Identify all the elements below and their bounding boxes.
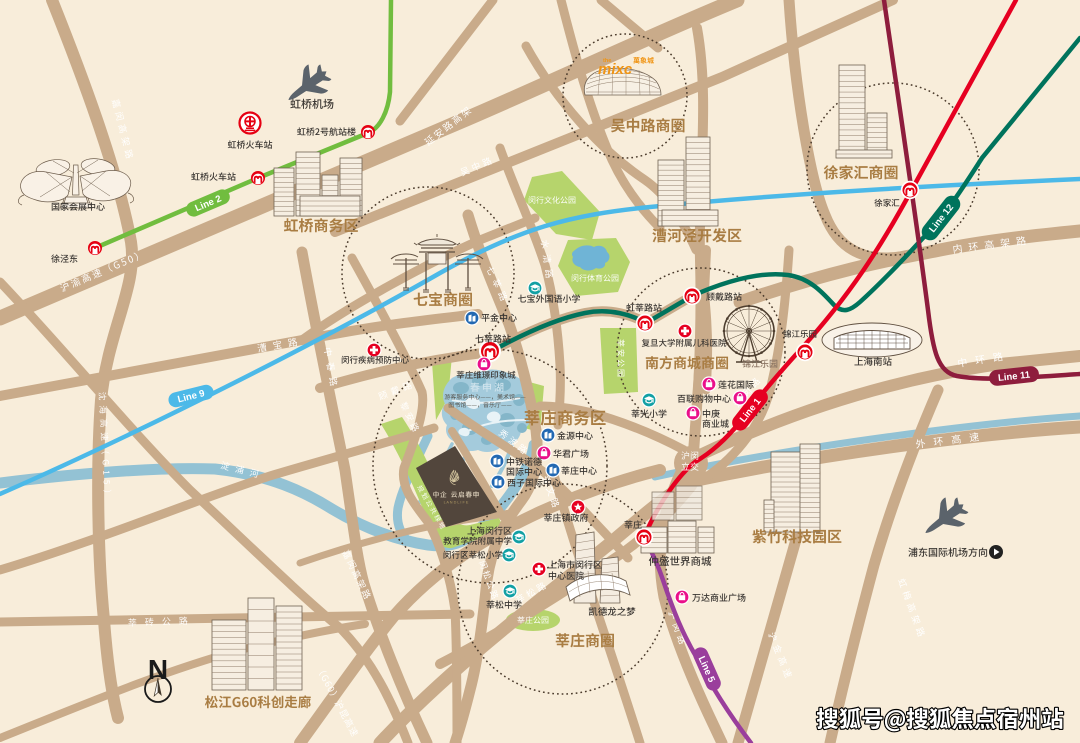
svg-text:mixc: mixc <box>598 61 633 78</box>
svg-text:L A N D L I F E: L A N D L I F E <box>444 501 469 505</box>
